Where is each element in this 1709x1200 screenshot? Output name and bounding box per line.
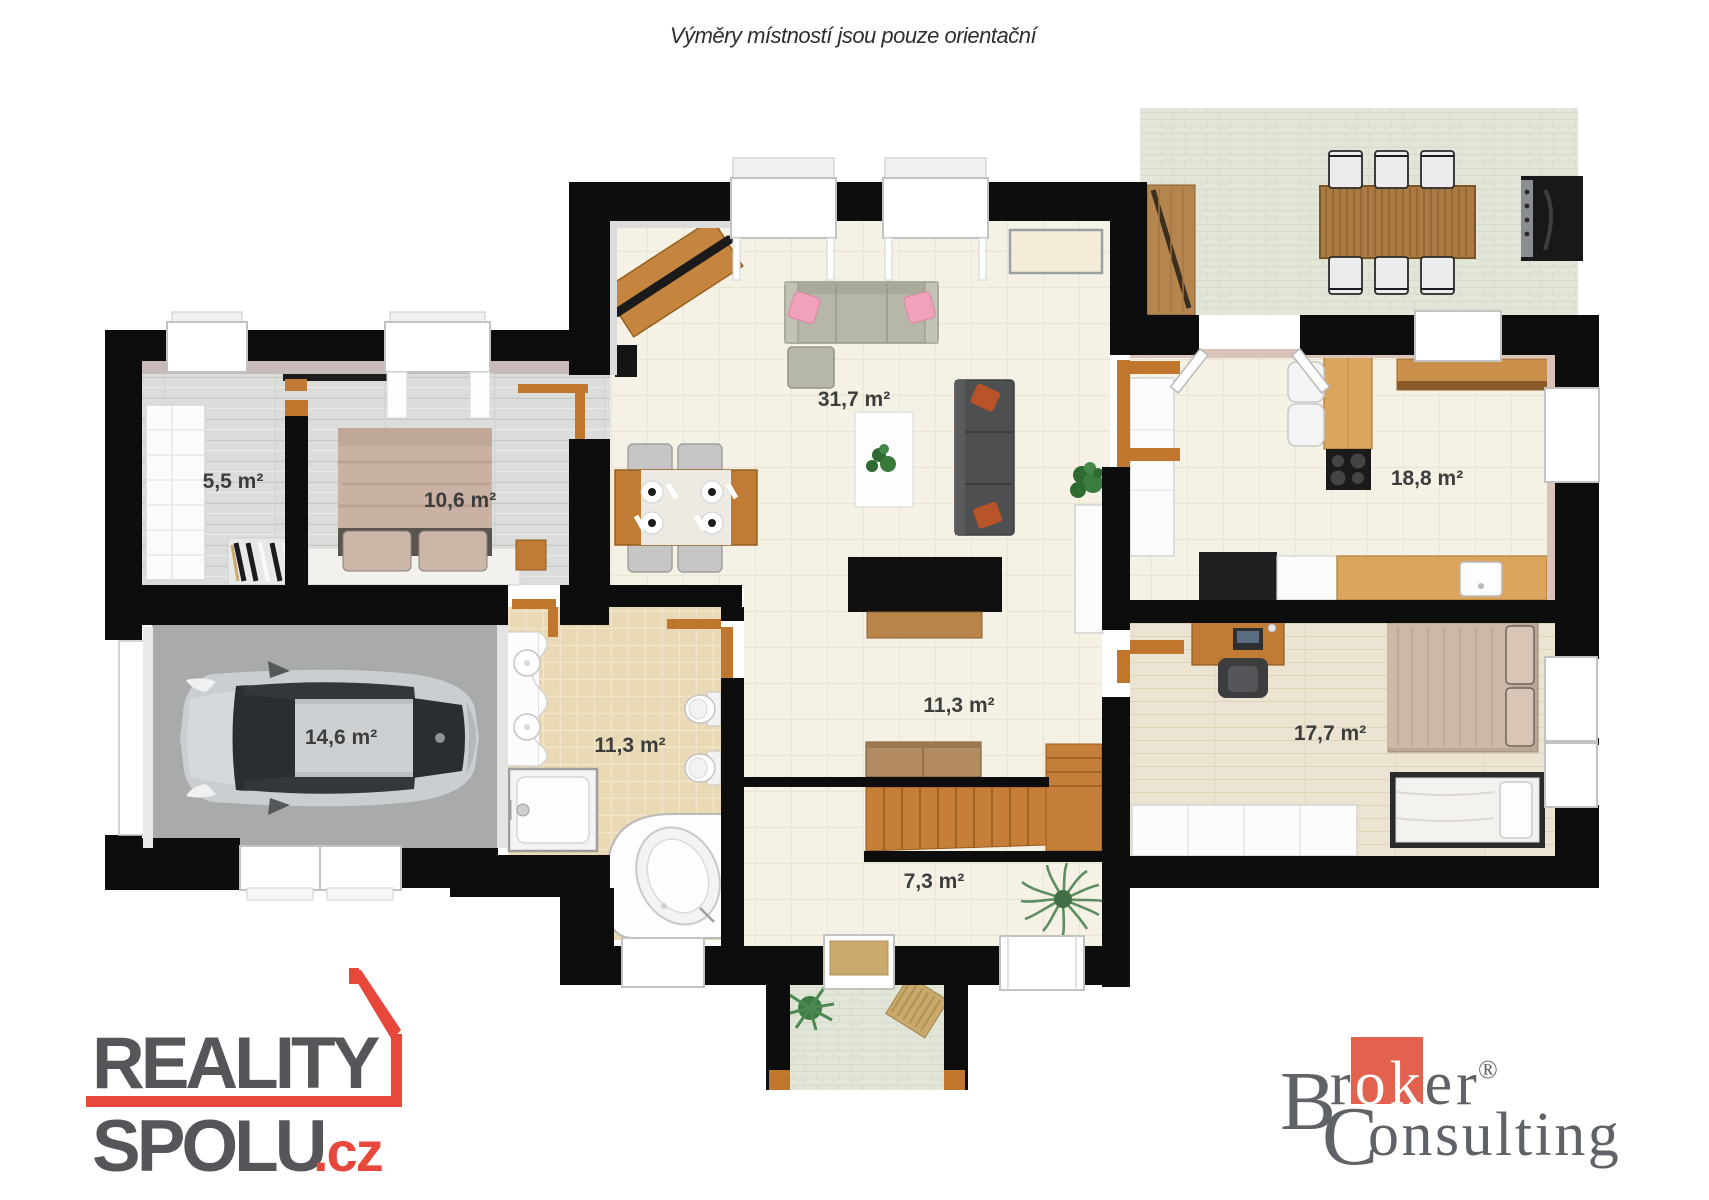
svg-text:11,3 m²: 11,3 m² [594, 734, 665, 757]
svg-text:31,7 m²: 31,7 m² [818, 388, 890, 411]
svg-text:5,5 m²: 5,5 m² [203, 470, 264, 493]
svg-text:SPOLU: SPOLU [92, 1106, 324, 1187]
svg-text:Výměry místností jsou pouze or: Výměry místností jsou pouze orientační [670, 23, 1039, 48]
svg-text:14,6 m²: 14,6 m² [305, 726, 377, 749]
svg-text:10,6 m²: 10,6 m² [424, 489, 496, 512]
svg-text:11,3 m²: 11,3 m² [923, 694, 994, 717]
svg-text:onsulting: onsulting [1368, 1101, 1621, 1169]
svg-text:REALITY: REALITY [92, 1023, 380, 1104]
svg-text:17,7 m²: 17,7 m² [1294, 722, 1366, 745]
svg-text:7,3 m²: 7,3 m² [904, 870, 965, 893]
svg-text:.cz: .cz [313, 1120, 382, 1183]
svg-text:18,8 m²: 18,8 m² [1391, 467, 1463, 490]
svg-text:®: ® [1478, 1055, 1498, 1084]
